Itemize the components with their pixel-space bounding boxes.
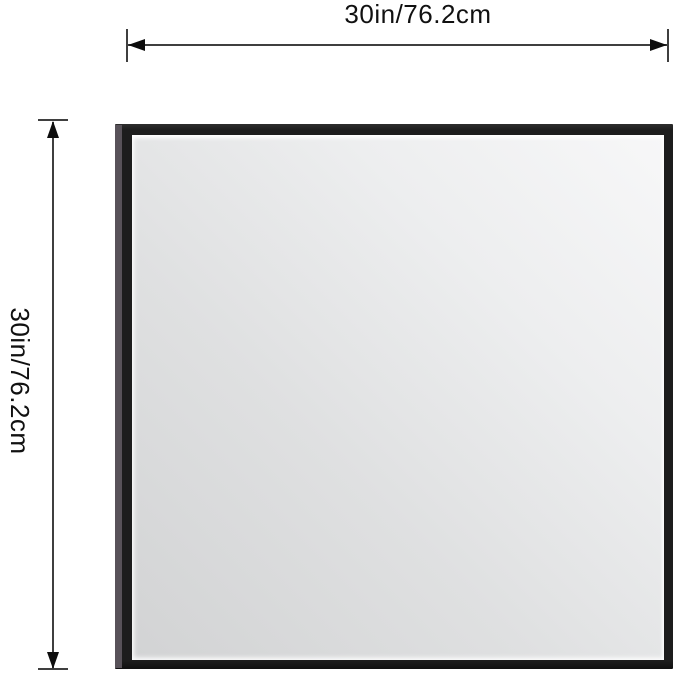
width-dimension-line [128,44,668,46]
mirror-frame-side-face [115,125,122,668]
arrow-left-icon [128,39,145,51]
arrow-right-icon [650,39,667,51]
arrow-up-icon [47,121,59,138]
width-dimension-label: 30in/76.2cm [318,0,518,29]
product-dimension-diagram: 30in/76.2cm 30in/76.2cm [0,0,679,675]
mirror-glass [132,135,664,660]
height-dimension-line [52,122,54,669]
height-dimension-label: 30in/76.2cm [5,301,35,461]
arrow-down-icon [47,652,59,669]
mirror-frame [115,124,673,669]
